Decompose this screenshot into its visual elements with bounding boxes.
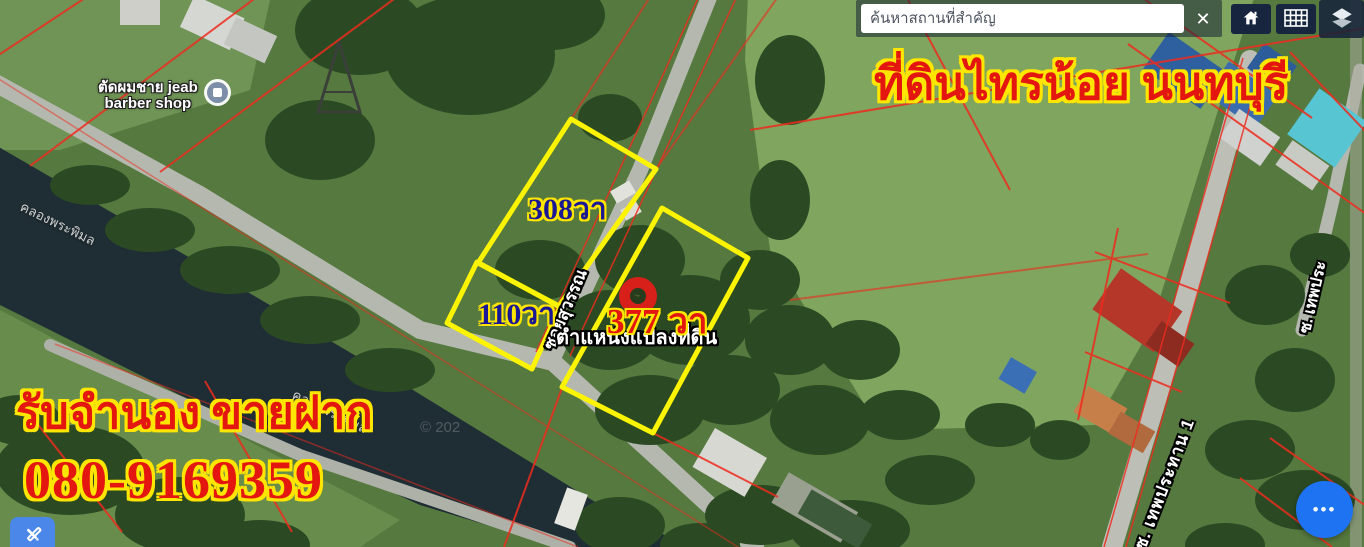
search-clear-icon[interactable]: ✕ (1189, 10, 1217, 28)
more-options-fab[interactable]: ••• (1296, 481, 1353, 538)
search-bar: ✕ (856, 0, 1222, 37)
poi-barber-line2: barber shop (98, 96, 198, 112)
imagery-copyright-watermark: © 202 (420, 420, 460, 436)
search-input[interactable] (861, 4, 1184, 33)
land-title-overlay: ที่ดินไทรน้อย นนทบุรี (874, 60, 1288, 108)
poi-barber-label[interactable]: ตัดผมชาย jeab barber shop (98, 80, 198, 112)
layers-button[interactable] (1319, 0, 1364, 38)
home-icon (1240, 7, 1262, 32)
basemap-grid-icon (1284, 9, 1308, 30)
poi-icon-glyph (213, 88, 222, 97)
promo-text: รับจำนอง ขายฝาก (16, 390, 373, 437)
layers-icon (1329, 5, 1355, 34)
poi-icon-inner (207, 82, 228, 103)
home-button[interactable] (1231, 4, 1271, 34)
basemap-grid-button[interactable] (1276, 4, 1316, 34)
more-options-icon: ••• (1313, 500, 1337, 520)
poi-barber-line1: ตัดผมชาย jeab (98, 80, 198, 96)
barber-poi-icon[interactable] (204, 79, 231, 106)
plot-area-label-377: 377 วา (607, 304, 708, 341)
plot-area-label-110: 110วา (478, 299, 555, 331)
map-application-window: ที่ดินไทรน้อย นนทบุรี รับจำนอง ขายฝาก 08… (0, 0, 1364, 547)
plot-area-label-308: 308วา (528, 194, 607, 226)
draw-measure-tools-icon (21, 523, 45, 547)
phone-number-text: 080-9169359 (24, 452, 323, 509)
draw-measure-tools-button[interactable] (10, 517, 55, 547)
